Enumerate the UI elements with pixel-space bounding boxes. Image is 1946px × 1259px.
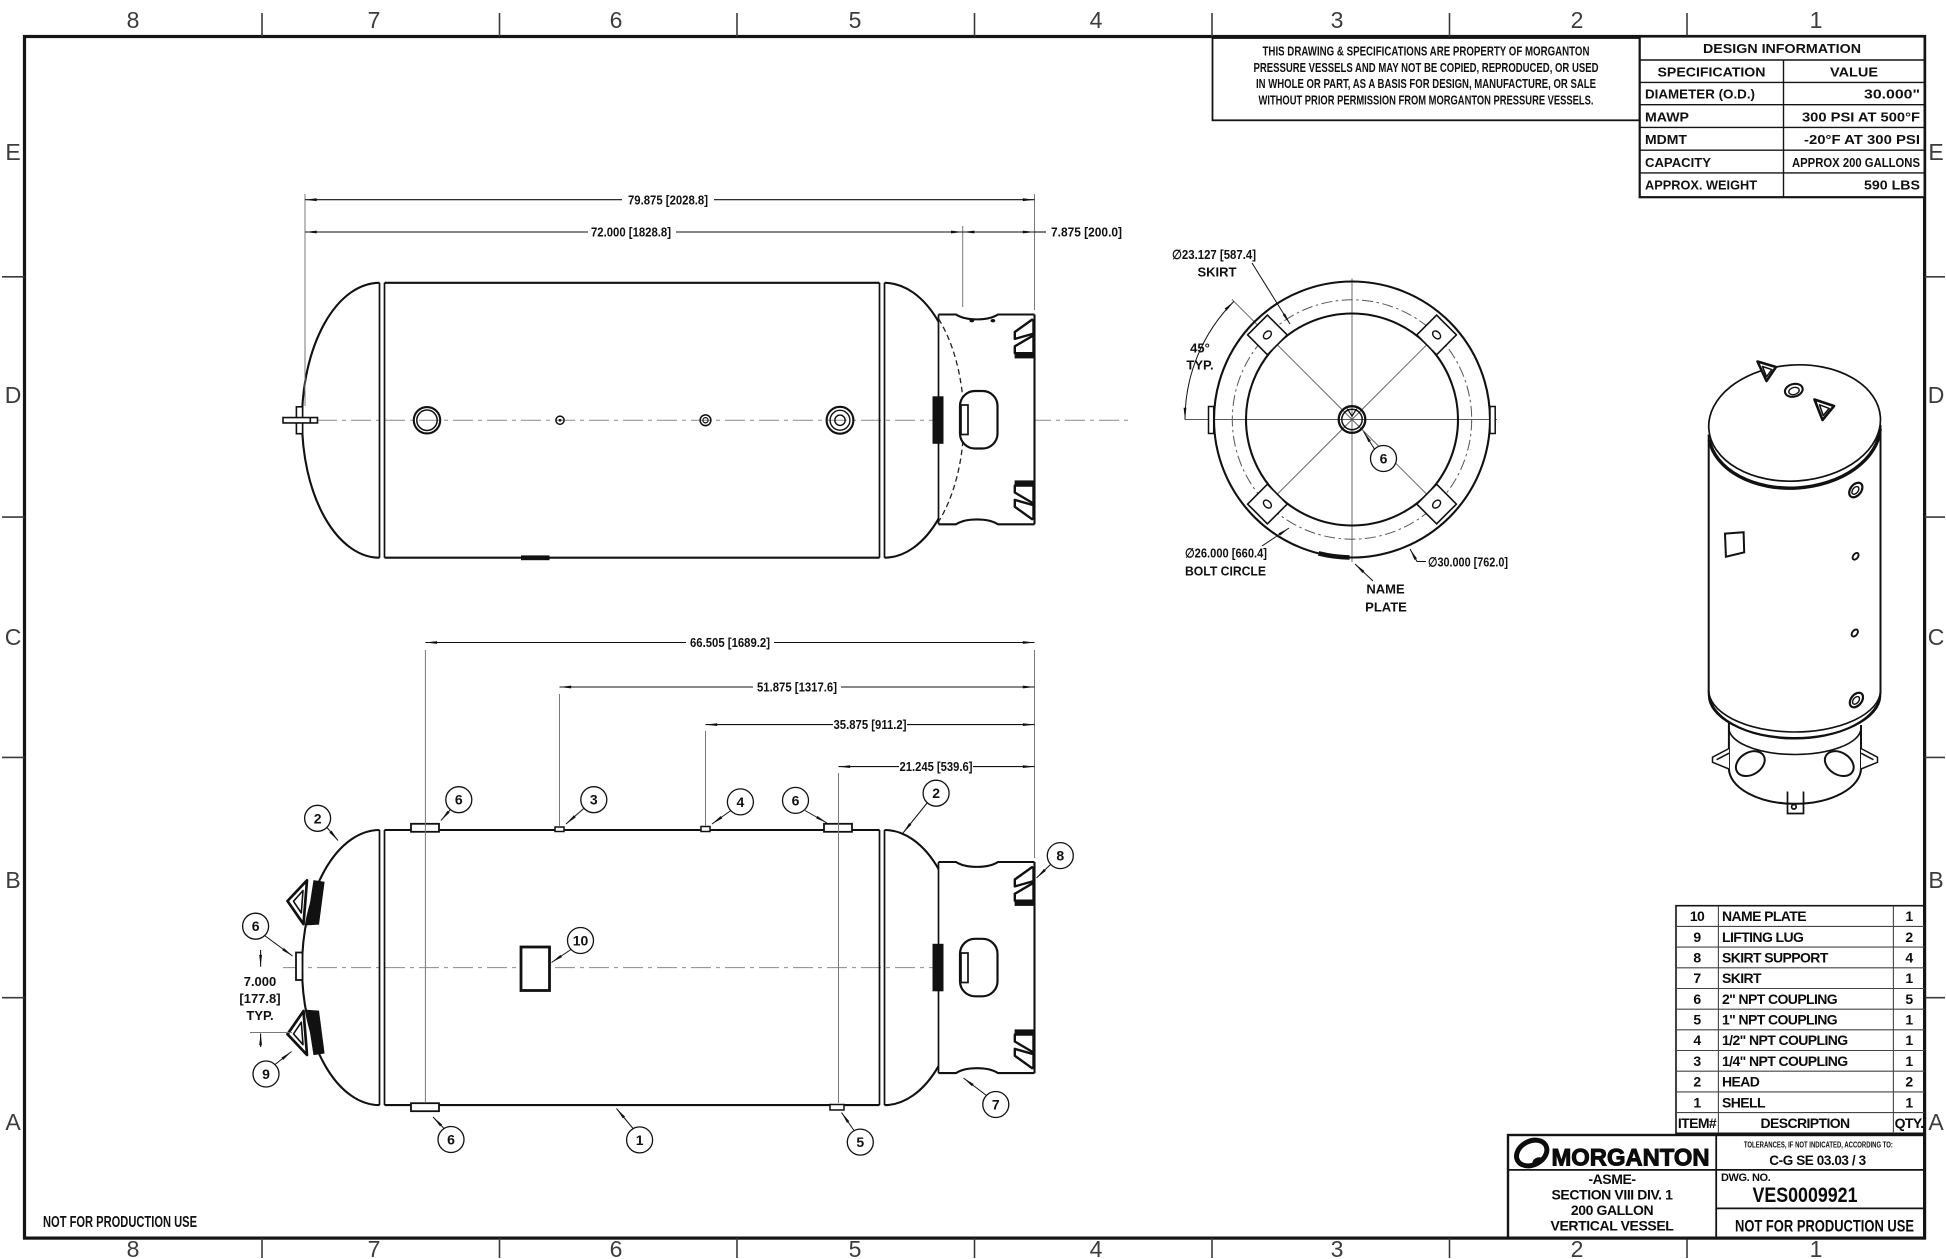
svg-text:-20°F AT 300 PSI: -20°F AT 300 PSI [1804, 132, 1920, 147]
svg-text:-ASME-: -ASME- [1588, 1171, 1636, 1187]
svg-text:1: 1 [1810, 1236, 1823, 1259]
svg-text:DESCRIPTION: DESCRIPTION [1760, 1115, 1850, 1131]
svg-text:10: 10 [573, 933, 589, 949]
svg-text:4: 4 [1693, 1032, 1701, 1048]
svg-text:C-G SE 03.03 / 3: C-G SE 03.03 / 3 [1769, 1153, 1866, 1168]
svg-text:7: 7 [368, 7, 381, 33]
svg-text:∅26.000 [660.4]: ∅26.000 [660.4] [1185, 546, 1267, 561]
svg-text:APPROX 200 GALLONS: APPROX 200 GALLONS [1792, 155, 1920, 170]
svg-text:C: C [1928, 624, 1945, 650]
svg-text:PRESSURE VESSELS AND MAY NOT B: PRESSURE VESSELS AND MAY NOT BE COPIED, … [1254, 60, 1599, 75]
svg-text:66.505 [1689.2]: 66.505 [1689.2] [690, 635, 770, 650]
svg-text:THIS DRAWING & SPECIFICATIONS: THIS DRAWING & SPECIFICATIONS ARE PROPER… [1263, 43, 1590, 58]
svg-text:WITHOUT PRIOR PERMISSION FROM: WITHOUT PRIOR PERMISSION FROM MORGANTON … [1259, 93, 1594, 108]
svg-text:QTY.: QTY. [1895, 1115, 1924, 1131]
svg-text:7.875 [200.0]: 7.875 [200.0] [1051, 225, 1122, 240]
svg-text:6: 6 [792, 792, 800, 808]
svg-text:7: 7 [992, 1097, 1000, 1113]
svg-text:2: 2 [1571, 7, 1584, 33]
svg-text:D: D [5, 382, 22, 408]
svg-text:B: B [5, 867, 20, 893]
svg-text:A: A [5, 1109, 21, 1135]
svg-text:1: 1 [1905, 970, 1913, 986]
svg-text:6: 6 [1693, 991, 1701, 1007]
svg-text:6: 6 [610, 1236, 623, 1259]
svg-text:8: 8 [1056, 848, 1064, 864]
svg-text:1: 1 [1905, 908, 1913, 924]
svg-text:10: 10 [1690, 908, 1705, 924]
svg-text:1: 1 [1905, 1032, 1913, 1048]
svg-text:NOT FOR PRODUCTION USE: NOT FOR PRODUCTION USE [43, 1214, 197, 1231]
svg-text:MAWP: MAWP [1645, 109, 1689, 124]
svg-text:45°: 45° [1190, 341, 1210, 356]
svg-text:8: 8 [1693, 950, 1701, 966]
svg-text:VERTICAL VESSEL: VERTICAL VESSEL [1551, 1218, 1675, 1234]
svg-text:MORGANTON: MORGANTON [1552, 1145, 1710, 1172]
svg-text:1: 1 [1905, 1094, 1913, 1110]
svg-text:6: 6 [610, 7, 623, 33]
svg-text:4: 4 [1905, 950, 1913, 966]
svg-text:3: 3 [1331, 1236, 1344, 1259]
svg-text:4: 4 [1090, 7, 1103, 33]
svg-text:5: 5 [856, 1134, 864, 1150]
svg-text:NAME PLATE: NAME PLATE [1722, 908, 1806, 924]
svg-text:1/4" NPT COUPLING: 1/4" NPT COUPLING [1722, 1053, 1848, 1069]
svg-text:A: A [1928, 1109, 1944, 1135]
svg-text:1: 1 [1693, 1094, 1701, 1110]
svg-text:3: 3 [590, 792, 598, 808]
svg-text:2: 2 [1693, 1074, 1701, 1090]
svg-text:6: 6 [252, 918, 260, 934]
svg-text:E: E [5, 139, 20, 165]
svg-text:SKIRT: SKIRT [1722, 970, 1762, 986]
svg-text:SKIRT: SKIRT [1198, 265, 1237, 280]
svg-text:APPROX. WEIGHT: APPROX. WEIGHT [1645, 178, 1757, 193]
svg-text:1: 1 [1810, 7, 1823, 33]
svg-text:VALUE: VALUE [1830, 64, 1878, 79]
svg-text:TYP.: TYP. [1186, 358, 1213, 373]
svg-text:SECTION VIII DIV. 1: SECTION VIII DIV. 1 [1551, 1187, 1673, 1203]
svg-text:79.875 [2028.8]: 79.875 [2028.8] [628, 192, 708, 207]
svg-text:CAPACITY: CAPACITY [1645, 155, 1711, 170]
svg-text:6: 6 [1380, 451, 1388, 467]
svg-text:5: 5 [1693, 1012, 1701, 1028]
svg-text:9: 9 [1693, 929, 1701, 945]
svg-text:200 GALLON: 200 GALLON [1571, 1202, 1654, 1218]
svg-text:2" NPT COUPLING: 2" NPT COUPLING [1722, 991, 1838, 1007]
svg-text:7: 7 [368, 1236, 381, 1259]
svg-text:2: 2 [1571, 1236, 1584, 1259]
svg-text:1: 1 [636, 1132, 644, 1148]
svg-text:2: 2 [932, 785, 940, 801]
svg-text:3: 3 [1693, 1053, 1701, 1069]
svg-text:3: 3 [1331, 7, 1344, 33]
svg-text:∅23.127 [587.4]: ∅23.127 [587.4] [1172, 247, 1256, 262]
svg-text:51.875 [1317.6]: 51.875 [1317.6] [757, 680, 837, 695]
svg-text:DESIGN INFORMATION: DESIGN INFORMATION [1703, 41, 1861, 56]
svg-text:1/2" NPT COUPLING: 1/2" NPT COUPLING [1722, 1032, 1848, 1048]
svg-text:SPECIFICATION: SPECIFICATION [1658, 64, 1766, 79]
svg-text:35.875 [911.2]: 35.875 [911.2] [834, 717, 907, 732]
svg-text:4: 4 [1090, 1236, 1103, 1259]
svg-text:590 LBS: 590 LBS [1864, 178, 1920, 193]
svg-text:SHELL: SHELL [1722, 1094, 1766, 1110]
svg-text:DWG. NO.: DWG. NO. [1721, 1172, 1771, 1184]
svg-text:VES0009921: VES0009921 [1753, 1184, 1858, 1207]
svg-text:6: 6 [447, 1132, 455, 1148]
svg-text:ITEM#: ITEM# [1678, 1115, 1717, 1131]
svg-text:B: B [1928, 867, 1943, 893]
svg-text:8: 8 [127, 7, 140, 33]
svg-text:IN WHOLE OR PART, AS A BASIS F: IN WHOLE OR PART, AS A BASIS FOR DESIGN,… [1256, 76, 1596, 91]
svg-text:∅30.000 [762.0]: ∅30.000 [762.0] [1428, 555, 1508, 570]
svg-text:NOT FOR PRODUCTION USE: NOT FOR PRODUCTION USE [1735, 1218, 1914, 1236]
svg-text:5: 5 [849, 7, 862, 33]
svg-text:9: 9 [262, 1066, 270, 1082]
svg-text:1: 1 [1905, 1012, 1913, 1028]
svg-text:8: 8 [127, 1236, 140, 1259]
svg-text:7.000: 7.000 [244, 974, 277, 989]
svg-text:2: 2 [314, 810, 322, 826]
svg-text:4: 4 [737, 794, 745, 810]
svg-text:DIAMETER (O.D.): DIAMETER (O.D.) [1645, 87, 1755, 102]
svg-text:HEAD: HEAD [1722, 1074, 1760, 1090]
svg-text:5: 5 [1905, 991, 1913, 1007]
svg-text:72.000 [1828.8]: 72.000 [1828.8] [591, 225, 671, 240]
svg-text:300 PSI AT 500°F: 300 PSI AT 500°F [1802, 109, 1920, 124]
svg-text:TOLERANCES, IF NOT INDICATED,: TOLERANCES, IF NOT INDICATED, ACCORDING … [1744, 1141, 1893, 1150]
svg-text:6: 6 [455, 792, 463, 808]
svg-text:1: 1 [1905, 1053, 1913, 1069]
svg-text:PLATE: PLATE [1365, 600, 1407, 615]
svg-text:TYP.: TYP. [246, 1008, 273, 1023]
svg-text:2: 2 [1905, 1074, 1913, 1090]
svg-text:30.000": 30.000" [1864, 87, 1920, 102]
svg-text:2: 2 [1905, 929, 1913, 945]
svg-text:D: D [1928, 382, 1945, 408]
svg-text:LIFTING LUG: LIFTING LUG [1722, 929, 1804, 945]
svg-text:C: C [5, 624, 22, 650]
svg-text:SKIRT SUPPORT: SKIRT SUPPORT [1722, 950, 1829, 966]
svg-text:E: E [1928, 139, 1943, 165]
svg-text:7: 7 [1693, 970, 1701, 986]
svg-text:NAME: NAME [1366, 582, 1405, 597]
svg-text:5: 5 [849, 1236, 862, 1259]
svg-text:[177.8]: [177.8] [239, 991, 280, 1006]
svg-text:MDMT: MDMT [1645, 132, 1687, 147]
svg-text:BOLT CIRCLE: BOLT CIRCLE [1185, 564, 1266, 579]
svg-text:1" NPT COUPLING: 1" NPT COUPLING [1722, 1012, 1838, 1028]
svg-text:21.245 [539.6]: 21.245 [539.6] [900, 759, 973, 774]
